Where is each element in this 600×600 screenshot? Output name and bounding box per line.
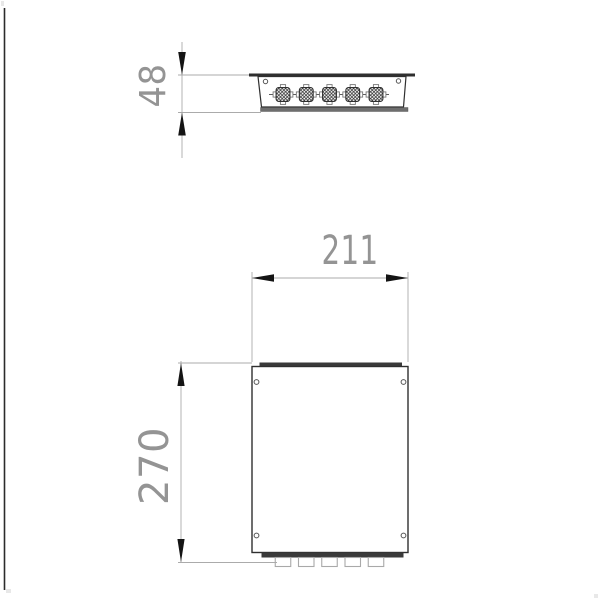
screw-hole	[254, 380, 259, 385]
screw-hole	[396, 79, 400, 83]
dimension-arrow	[178, 52, 186, 75]
top-view-front-lip	[261, 108, 409, 112]
dimension-arrow	[252, 274, 274, 282]
bottom-connector	[368, 558, 384, 567]
dimension-width-label: 211	[322, 228, 379, 274]
bottom-connector	[322, 558, 338, 567]
screw-hole	[254, 533, 259, 538]
dimension-arrow	[177, 539, 184, 562]
top-view	[249, 75, 415, 112]
scan-artifact	[1, 1, 4, 6]
dimension-height-label: 270	[132, 427, 178, 505]
gland-body	[323, 88, 337, 102]
bottom-connector	[299, 558, 315, 567]
front-view-body	[252, 367, 408, 553]
dimension-arrow	[178, 113, 186, 136]
scan-artifact	[594, 594, 598, 598]
depth-dimension: 48	[133, 42, 261, 158]
dimension-arrow	[386, 274, 408, 282]
bottom-connectors	[275, 558, 384, 567]
dimension-drawing: 48 211 270	[0, 0, 600, 600]
gland-body	[346, 88, 360, 102]
front-view-lid-strip-bottom	[262, 553, 404, 558]
screw-hole	[401, 380, 406, 385]
gland-body	[369, 88, 383, 102]
front-view	[252, 363, 408, 567]
bottom-connector	[275, 558, 291, 567]
technical-drawing-canvas: 48 211 270	[0, 0, 600, 600]
bottom-connector	[345, 558, 361, 567]
scan-artifact	[6, 589, 11, 593]
screw-hole	[263, 79, 267, 83]
dimension-depth-label: 48	[133, 64, 174, 108]
width-dimension: 211	[252, 228, 408, 362]
dimension-arrow	[177, 363, 184, 386]
screw-hole	[401, 533, 406, 538]
gland-body	[276, 88, 290, 102]
gland-body	[299, 88, 313, 102]
